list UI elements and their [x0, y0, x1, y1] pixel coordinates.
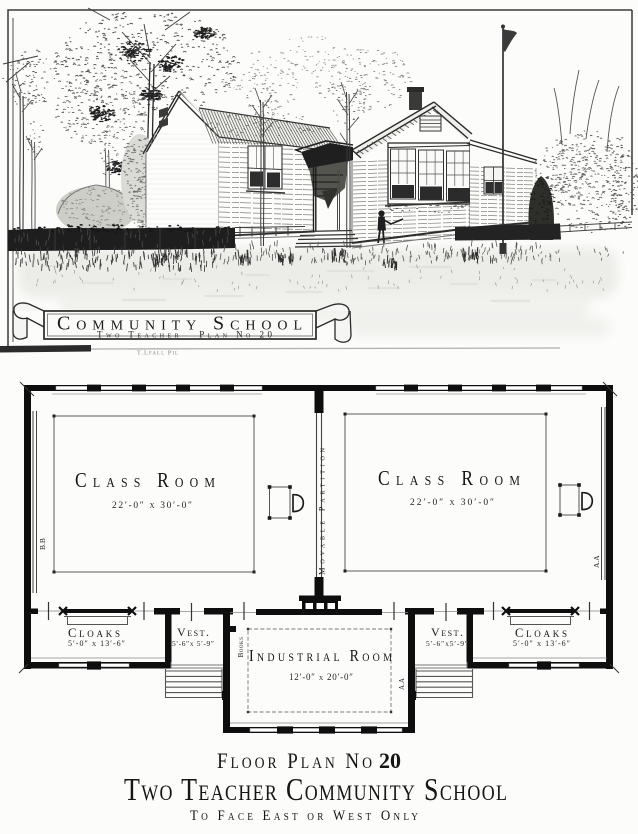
svg-text:Community School: Community School [57, 313, 302, 335]
svg-text:5′-6″x 5′-9″: 5′-6″x 5′-9″ [172, 639, 214, 648]
svg-text:A.A: A.A [398, 678, 406, 690]
svg-text:B.B: B.B [38, 538, 47, 550]
svg-text:Cloaks: Cloaks [515, 626, 567, 640]
svg-text:Floor Plan No: Floor Plan No [217, 749, 372, 774]
svg-text:5′-0″ x 13′-6″: 5′-0″ x 13′-6″ [68, 639, 125, 648]
svg-text:5′-0″ x 13′-6″: 5′-0″ x 13′-6″ [513, 639, 570, 648]
svg-text:Cloaks: Cloaks [68, 626, 120, 640]
svg-text:Books: Books [237, 637, 245, 658]
svg-text:Class Room: Class Room [75, 470, 215, 493]
svg-text:22′-0″ x 30′-0″: 22′-0″ x 30′-0″ [410, 498, 494, 508]
svg-text:20: 20 [379, 748, 401, 773]
svg-text:Vest.: Vest. [431, 625, 463, 639]
svg-text:22′-0″ x 30′-0″: 22′-0″ x 30′-0″ [112, 501, 192, 511]
svg-text:Industrial Room: Industrial Room [249, 647, 392, 665]
svg-text:A.A: A.A [592, 555, 601, 568]
svg-text:12′-0″ x 20′-0″: 12′-0″ x 20′-0″ [289, 672, 353, 682]
svg-text:Vest.: Vest. [177, 625, 209, 639]
svg-text:T.Lfall Pil: T.Lfall Pil [137, 350, 179, 357]
svg-text:Two Teacher Community School: Two Teacher Community School [124, 773, 507, 808]
svg-text:To Face East or West Only: To Face East or West Only [190, 808, 418, 824]
svg-text:Class Room: Class Room [378, 468, 520, 491]
svg-text:Movable Partition: Movable Partition [317, 447, 327, 575]
svg-text:5′-6″x5′-9″: 5′-6″x5′-9″ [426, 639, 468, 648]
